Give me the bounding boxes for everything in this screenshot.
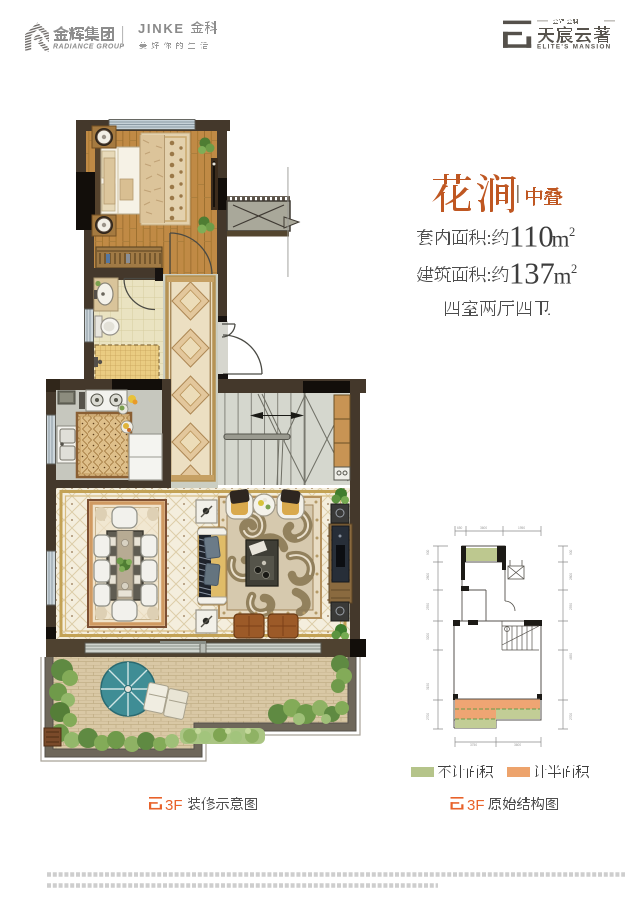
svg-text:3F: 3F	[467, 797, 485, 814]
svg-text:2700: 2700	[569, 713, 573, 720]
svg-text:2700: 2700	[426, 713, 430, 720]
svg-text:2550: 2550	[569, 603, 573, 610]
svg-text:4650: 4650	[569, 653, 573, 660]
svg-text:m: m	[554, 264, 572, 289]
svg-text:2: 2	[571, 262, 577, 276]
svg-text:2800: 2800	[426, 573, 430, 580]
svg-text:RADIANCE GROUP: RADIANCE GROUP	[53, 44, 125, 51]
svg-text:2550: 2550	[426, 603, 430, 610]
svg-text:2800: 2800	[569, 573, 573, 580]
svg-text:900: 900	[426, 549, 430, 555]
svg-text:ELITE'S MANSION: ELITE'S MANSION	[537, 43, 612, 50]
svg-text:3750: 3750	[470, 743, 477, 747]
svg-text:2: 2	[569, 225, 575, 239]
svg-text:m: m	[552, 227, 570, 252]
svg-text:900: 900	[569, 549, 573, 555]
svg-text:3150: 3150	[426, 683, 430, 690]
svg-text:1950: 1950	[518, 526, 525, 530]
svg-text:3600: 3600	[480, 526, 487, 530]
svg-text:3F: 3F	[165, 797, 183, 814]
svg-text:137: 137	[509, 257, 555, 291]
svg-text:650: 650	[457, 526, 463, 530]
svg-text:JINKE: JINKE	[138, 21, 185, 36]
svg-text:110: 110	[509, 220, 554, 254]
svg-text:3600: 3600	[514, 743, 521, 747]
svg-text:3200: 3200	[426, 633, 430, 640]
